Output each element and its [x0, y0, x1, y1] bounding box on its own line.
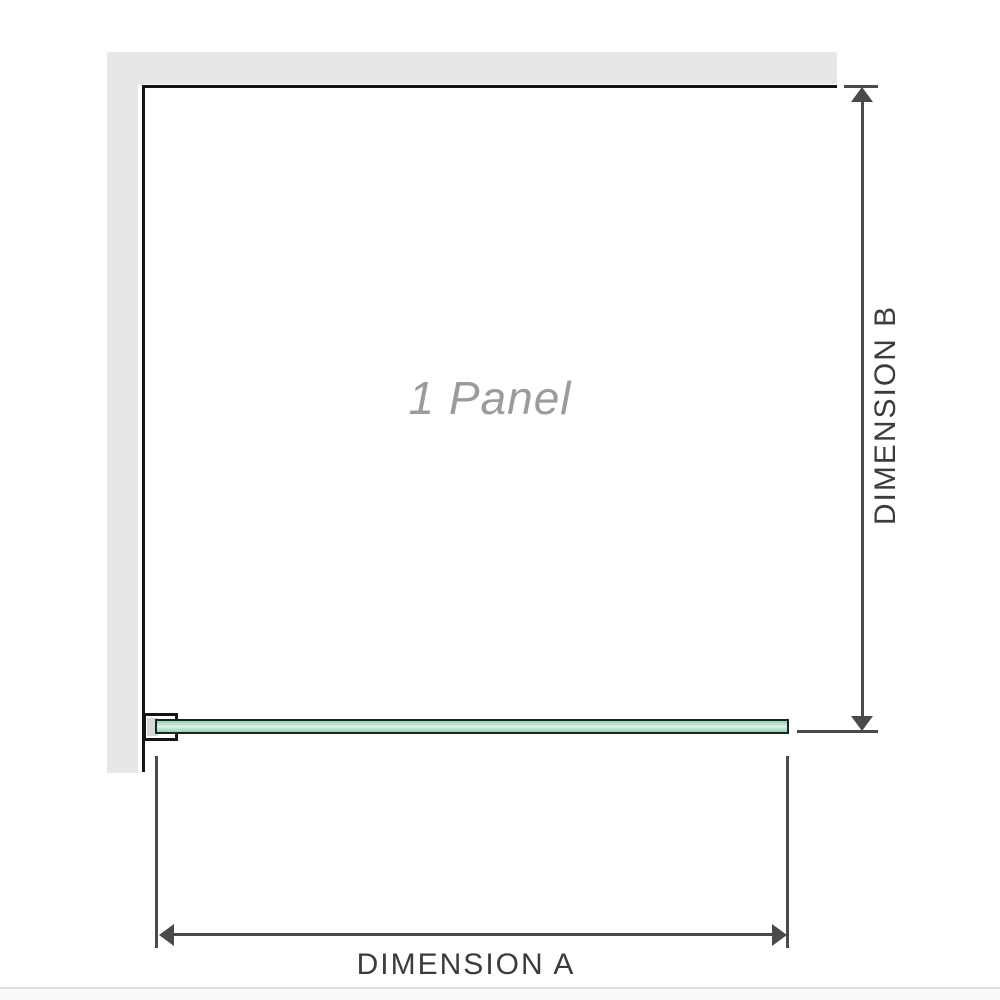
wall-top-band [107, 52, 837, 84]
wall-left-band [107, 52, 138, 773]
arrow-right-icon [772, 924, 787, 946]
panel-count-label: 1 Panel [143, 371, 837, 425]
dimension-b-label: DIMENSION B [869, 305, 903, 525]
panel-left-edge [142, 85, 145, 772]
panel-top-edge [143, 85, 837, 88]
footer-area [0, 989, 1000, 1000]
arrow-up-icon [851, 87, 873, 102]
dimension-b-line [861, 98, 864, 720]
dimension-a-right-extension [786, 756, 789, 948]
dimension-a-label: DIMENSION A [143, 948, 789, 982]
dimension-a-line [172, 933, 774, 936]
dimension-a-left-extension [155, 756, 158, 948]
arrow-left-icon [159, 924, 174, 946]
shower-screen-diagram: { "diagram": { "panel_label": "1 Panel",… [0, 0, 1000, 1000]
arrow-down-icon [851, 716, 873, 731]
glass-panel-plan-view [155, 719, 789, 734]
